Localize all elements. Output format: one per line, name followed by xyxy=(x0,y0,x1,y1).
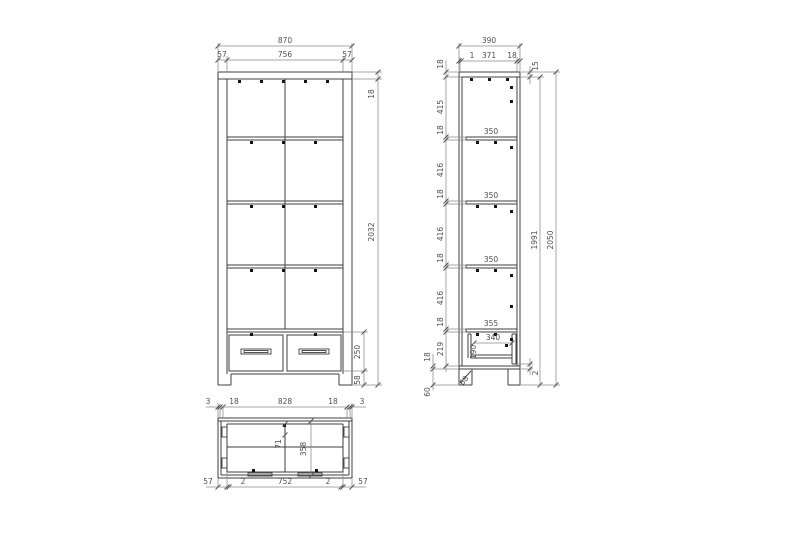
dim-side-bottom-panel: 18 xyxy=(423,352,432,362)
dim-plan-bottom-3: 2 xyxy=(326,477,331,486)
plan-bracket-top-left xyxy=(222,427,227,437)
dim-side-front-gap: 2 xyxy=(531,370,540,375)
dim-plan-bottom-1: 2 xyxy=(241,477,246,486)
dim-side-chain-1: 415 xyxy=(436,100,445,115)
dim-side-chain-4: 18 xyxy=(436,189,445,199)
dim-side-front-panel: 18 xyxy=(507,51,517,60)
dim-front-mid-width: 756 xyxy=(278,50,293,59)
dim-front-top-thickness: 18 xyxy=(367,89,376,99)
dim-side-total-depth: 390 xyxy=(482,36,497,45)
dim-plan-top-2: 828 xyxy=(278,397,293,406)
side-view: 390 1 371 18 15 18 415 18 416 18 416 18 … xyxy=(423,36,560,397)
drawer-handle-left xyxy=(241,349,271,354)
front-cabinet-outline xyxy=(218,72,352,385)
dim-plan-inner-a: 71 xyxy=(274,439,283,449)
dim-plan-bottom-4: 57 xyxy=(358,477,368,486)
dim-side-total-height: 2050 xyxy=(546,230,555,249)
dim-plan-top-3: 18 xyxy=(328,397,338,406)
dim-front-body-height: 2032 xyxy=(367,222,376,241)
dim-plan-top-4: 3 xyxy=(360,397,365,406)
dim-side-back-gap: 1 xyxy=(470,51,475,60)
dim-front-right-width: 57 xyxy=(342,50,352,59)
dim-side-top-detail: 15 xyxy=(531,61,540,71)
dim-front-total-width: 870 xyxy=(278,36,293,45)
plan-bracket-bottom-right xyxy=(344,458,349,468)
plan-dimension-lines xyxy=(206,403,366,487)
dim-plan-inner-b: 358 xyxy=(299,442,308,457)
dim-front-left-width: 57 xyxy=(217,50,227,59)
drawing-svg: 870 57 756 57 18 2032 250 58 390 1 371 1… xyxy=(0,0,800,533)
front-view: 870 57 756 57 18 2032 250 58 xyxy=(216,36,383,388)
dim-front-plinth-height: 58 xyxy=(353,375,362,385)
technical-drawing: 870 57 756 57 18 2032 250 58 390 1 371 1… xyxy=(0,0,800,533)
dim-plan-bottom-2: 752 xyxy=(278,477,293,486)
plan-bracket-top-right xyxy=(344,427,349,437)
dim-shelf-2: 350 xyxy=(484,191,499,200)
dim-drawer-width: 340 xyxy=(486,333,501,342)
front-dimension-ticks xyxy=(216,44,381,388)
plan-bracket-bottom-left xyxy=(222,458,227,468)
drawer-front-left xyxy=(229,335,283,371)
front-dimension-lines xyxy=(218,43,382,385)
dim-side-chain-2: 18 xyxy=(436,125,445,135)
dim-side-chain-8: 18 xyxy=(436,317,445,327)
dim-shelf-4: 355 xyxy=(484,319,499,328)
plan-view: 3 18 828 18 3 71 358 57 2 752 2 57 xyxy=(203,397,368,490)
dim-side-chain-3: 416 xyxy=(436,163,445,178)
drawer-handle-left-inner xyxy=(244,351,268,353)
dim-side-plinth: 60 xyxy=(423,387,432,397)
dim-side-chain-7: 416 xyxy=(436,291,445,306)
dim-plan-bottom-0: 57 xyxy=(203,477,213,486)
dim-side-inner-depth: 371 xyxy=(482,51,497,60)
dim-side-inner-height: 1991 xyxy=(530,230,539,249)
drawer-handle-right xyxy=(299,349,329,354)
dim-shelf-1: 350 xyxy=(484,127,499,136)
dim-front-drawer-height: 250 xyxy=(353,345,362,360)
dim-shelf-3: 350 xyxy=(484,255,499,264)
drawer-front-right xyxy=(287,335,341,371)
dim-side-chain-5: 416 xyxy=(436,227,445,242)
dim-plan-top-0: 3 xyxy=(206,397,211,406)
dim-side-chain-6: 18 xyxy=(436,253,445,263)
front-fitting-marks xyxy=(238,80,329,336)
dim-side-chain-9: 219 xyxy=(436,342,445,357)
dim-drawer-height: 190 xyxy=(469,345,478,360)
dim-side-chain-0: 18 xyxy=(436,59,445,69)
side-fitting-marks xyxy=(470,78,513,347)
drawer-handle-right-inner xyxy=(302,351,326,353)
dim-plan-top-1: 18 xyxy=(229,397,239,406)
